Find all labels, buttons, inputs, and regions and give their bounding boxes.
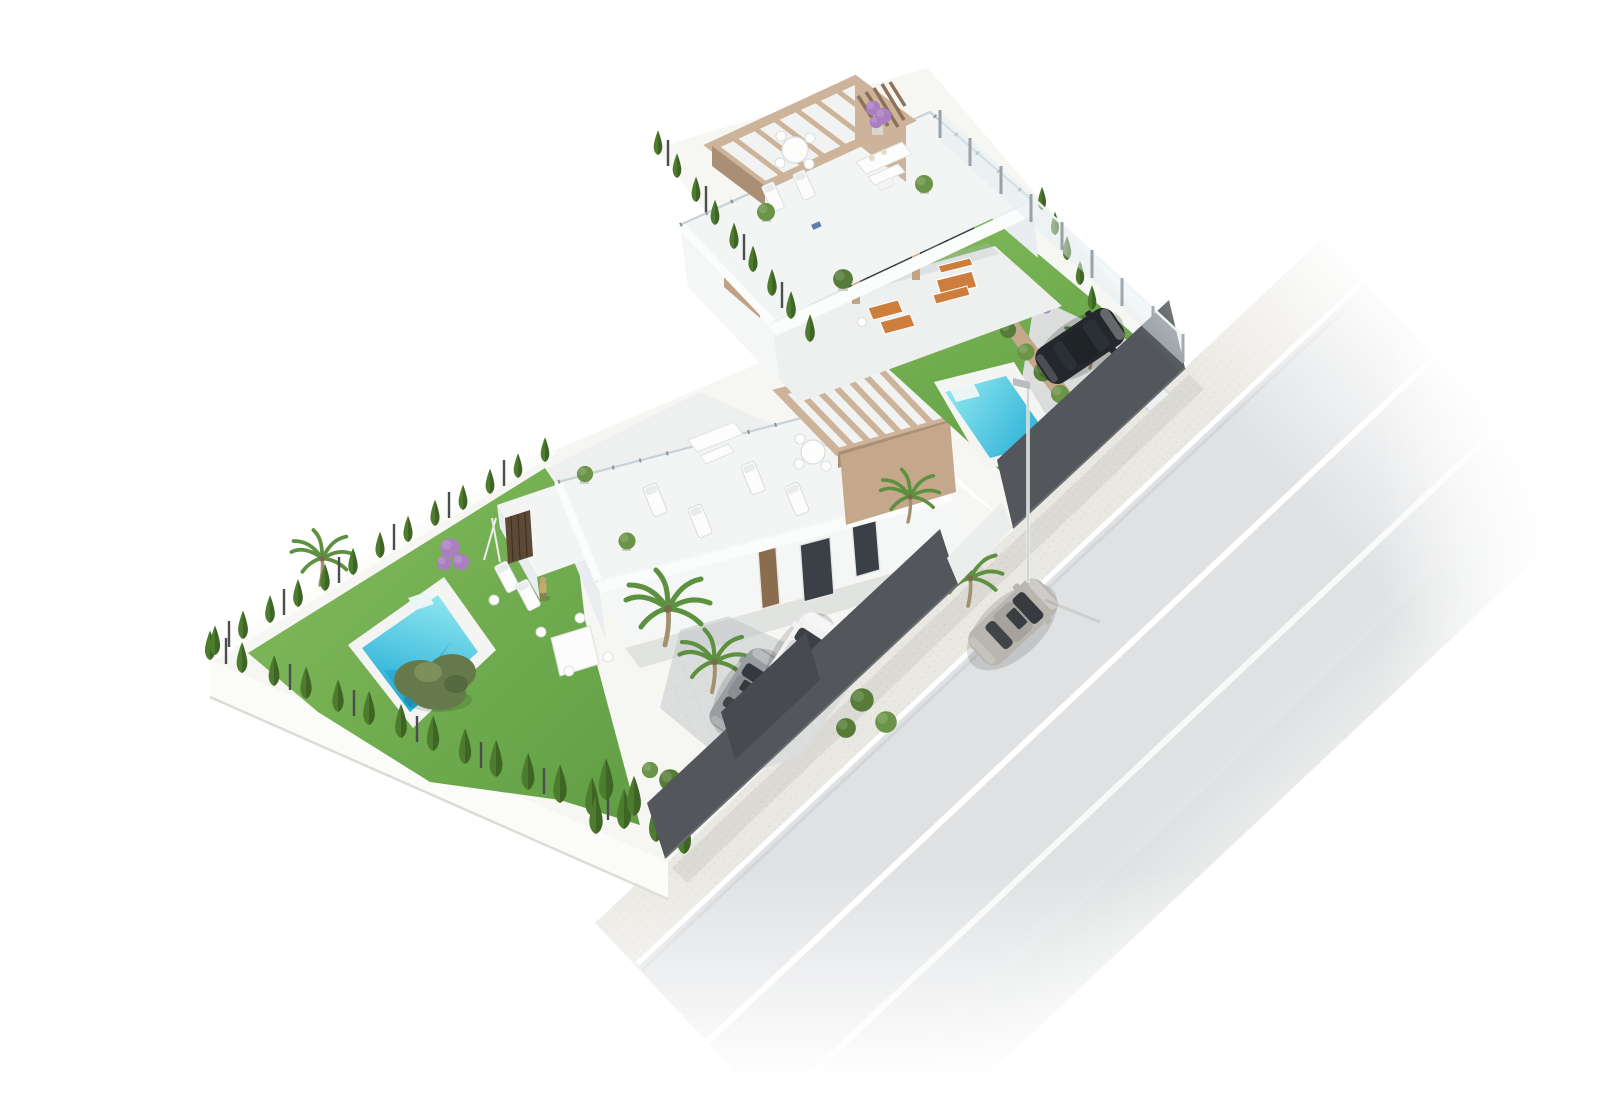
front-door <box>758 547 780 609</box>
front-window-2 <box>852 520 880 577</box>
roof-round-table <box>801 440 825 464</box>
roof-dining-table <box>782 137 808 163</box>
render-canvas <box>0 0 1600 1119</box>
white-side-table <box>858 318 867 327</box>
patio-side-table <box>489 595 499 605</box>
front-window-1 <box>800 537 834 602</box>
site-render <box>0 0 1600 1119</box>
